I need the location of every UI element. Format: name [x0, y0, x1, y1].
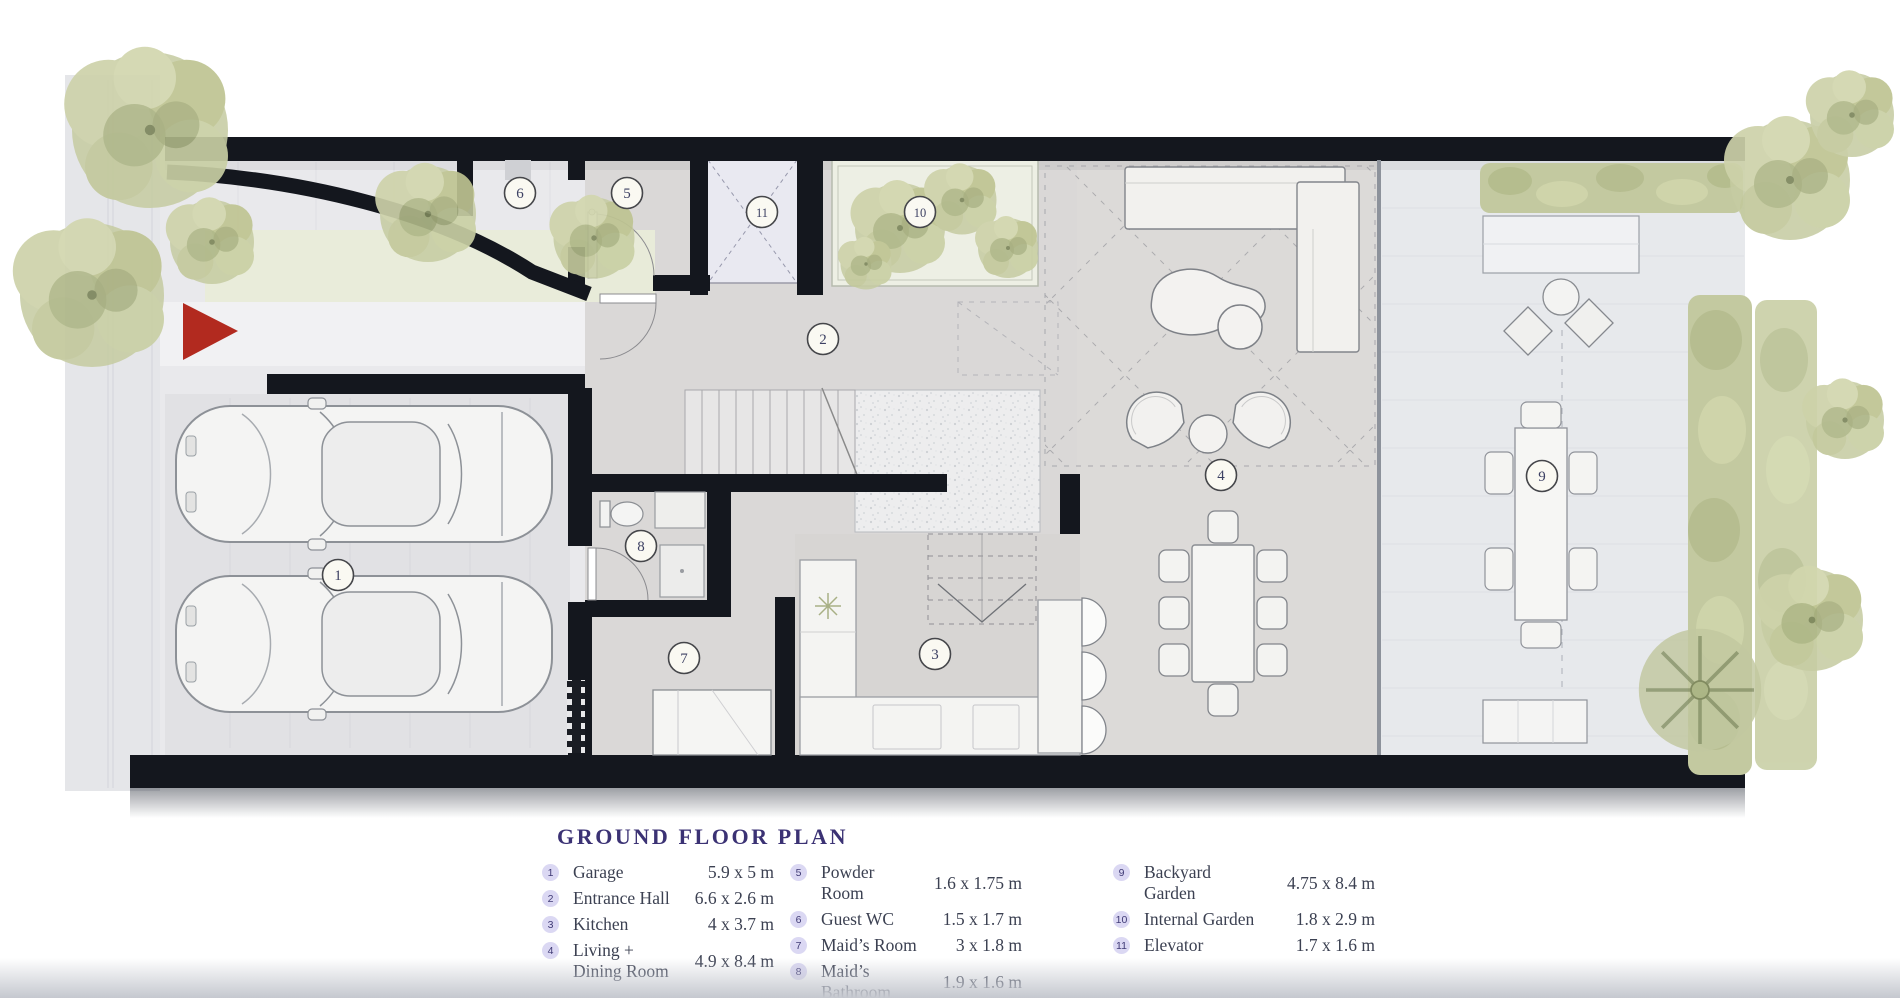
dining-chair	[1257, 597, 1287, 629]
plan-room-badge-10: 10	[905, 197, 936, 228]
plan-badge-number: 9	[1538, 469, 1546, 485]
outdoor-dining-table	[1515, 428, 1567, 620]
room-number-badge: 7	[790, 937, 807, 954]
wall-bottom	[130, 755, 1745, 788]
outdoor-chair	[1521, 402, 1561, 428]
room-name: Powder Room	[821, 862, 922, 904]
room-name: Garage	[573, 862, 674, 883]
maid-bed	[653, 690, 771, 755]
plan-badge-number: 10	[914, 206, 927, 220]
wall-below-stairs	[585, 474, 947, 492]
outdoor-chair	[1521, 622, 1561, 648]
plan-badge-number: 6	[516, 186, 524, 202]
room-name: Kitchen	[573, 914, 674, 935]
wall-maid-bath-right	[707, 474, 731, 617]
plan-title: GROUND FLOOR PLAN	[557, 824, 848, 850]
plan-bottom-shadow	[130, 788, 1745, 818]
room-number-badge: 10	[1113, 911, 1130, 928]
outdoor-chair	[1485, 452, 1513, 494]
dining-chair	[1257, 550, 1287, 582]
tree	[13, 218, 164, 367]
wall-garage-right-upper	[568, 388, 592, 546]
room-number-badge: 6	[790, 911, 807, 928]
wall-maid-bath-bottom	[585, 600, 731, 617]
room-dimensions: 1.5 x 1.7 m	[922, 909, 1023, 930]
outdoor-chair	[1485, 548, 1513, 590]
dining-chair	[1159, 597, 1189, 629]
plan-badge-number: 8	[637, 539, 645, 555]
outdoor-chair	[1569, 548, 1597, 590]
room-number-badge: 1	[542, 864, 559, 881]
room-number-badge: 9	[1113, 864, 1130, 881]
floor-plan-canvas: 1234567891011	[0, 0, 1900, 998]
room-number-badge: 2	[542, 890, 559, 907]
plan-badge-number: 3	[931, 647, 939, 663]
garage-car-1	[176, 398, 552, 550]
wall-stub-a	[568, 158, 585, 180]
plan-badge-number: 5	[623, 186, 631, 202]
glass-wall-backyard	[1377, 160, 1381, 755]
room-name: Guest WC	[821, 909, 922, 930]
room-name: Backyard Garden	[1144, 862, 1260, 904]
dining-chair	[1159, 644, 1189, 676]
legend-item: 3Kitchen4 x 3.7 m	[542, 914, 774, 935]
dining-chair	[1208, 511, 1238, 543]
legend-item: 6Guest WC1.5 x 1.7 m	[790, 909, 1022, 930]
wall-kitchen-left	[775, 597, 795, 755]
kitchen-counter-left	[800, 560, 856, 700]
room-number-badge: 5	[790, 864, 807, 881]
legend-item: 2Entrance Hall6.6 x 2.6 m	[542, 888, 774, 909]
wall-garage-top	[267, 374, 585, 394]
outdoor-chair	[1569, 452, 1597, 494]
plan-room-badge-5: 5	[612, 178, 643, 209]
vanity	[655, 492, 705, 528]
legend-item: 9Backyard Garden4.75 x 8.4 m	[1113, 862, 1375, 904]
shower-drain	[680, 569, 684, 573]
garden-round-table	[1543, 279, 1579, 315]
wall-kitchen-corner	[1060, 474, 1080, 534]
legend-column-3: 9Backyard Garden4.75 x 8.4 m10Internal G…	[1113, 862, 1375, 956]
wall-elevator-right	[797, 155, 823, 295]
plan-badge-number: 1	[334, 568, 342, 584]
room-dimensions: 5.9 x 5 m	[674, 862, 775, 883]
plan-room-badge-2: 2	[808, 324, 839, 355]
legend-item: 5Powder Room1.6 x 1.75 m	[790, 862, 1022, 904]
plan-badge-number: 4	[1217, 468, 1225, 484]
room-number-badge: 3	[542, 916, 559, 933]
legend-item: 10Internal Garden1.8 x 2.9 m	[1113, 909, 1375, 930]
dining-chair	[1159, 550, 1189, 582]
plan-badge-number: 11	[756, 206, 768, 220]
legend-item: 11Elevator1.7 x 1.6 m	[1113, 935, 1375, 956]
legend-item: 1Garage5.9 x 5 m	[542, 862, 774, 883]
room-dimensions: 6.6 x 2.6 m	[674, 888, 775, 909]
plan-room-badge-7: 7	[669, 643, 700, 674]
room-name: Maid’s Room	[821, 935, 922, 956]
breakfast-bar	[1038, 600, 1082, 753]
toilet-tank	[600, 501, 610, 527]
room-dimensions: 4 x 3.7 m	[674, 914, 775, 935]
side-table-round	[1189, 415, 1227, 453]
dining-chair	[1208, 684, 1238, 716]
room-dimensions: 1.6 x 1.75 m	[922, 873, 1023, 894]
room-name: Elevator	[1144, 935, 1260, 956]
toilet-bowl	[611, 502, 643, 526]
palm-tree	[1639, 629, 1761, 751]
room-name: Entrance Hall	[573, 888, 674, 909]
backyard-bench	[1483, 700, 1587, 743]
wall-top	[165, 137, 1745, 161]
dining-chair	[1257, 644, 1287, 676]
garage-shutter-strip	[567, 680, 585, 753]
room-dimensions: 3 x 1.8 m	[922, 935, 1023, 956]
room-number-badge: 4	[542, 942, 559, 959]
legend-item: 7Maid’s Room3 x 1.8 m	[790, 935, 1022, 956]
room-dimensions: 1.8 x 2.9 m	[1260, 909, 1376, 930]
plan-room-badge-9: 9	[1527, 461, 1558, 492]
room-number-badge: 11	[1113, 937, 1130, 954]
ottoman-round	[1218, 305, 1262, 349]
dining-table	[1192, 545, 1254, 682]
wall-elevator-left	[690, 155, 708, 295]
plan-room-badge-11: 11	[747, 197, 778, 228]
room-name: Internal Garden	[1144, 909, 1260, 930]
plan-room-badge-1: 1	[323, 560, 354, 591]
backyard-hedge-right-b	[1755, 300, 1817, 770]
plan-badge-number: 2	[819, 332, 827, 348]
page-bottom-fade	[0, 958, 1900, 998]
plan-room-badge-8: 8	[626, 531, 657, 562]
garage-car-2	[176, 568, 552, 720]
plan-room-badge-3: 3	[920, 639, 951, 670]
stair-landing-carpet	[855, 390, 1040, 532]
plan-room-badge-4: 4	[1206, 460, 1237, 491]
plan-room-badge-6: 6	[505, 178, 536, 209]
backyard-hedge-top	[1480, 163, 1743, 213]
room-dimensions: 4.75 x 8.4 m	[1260, 873, 1376, 894]
room-dimensions: 1.7 x 1.6 m	[1260, 935, 1376, 956]
main-staircase	[685, 388, 858, 477]
floor-plan-page: { "title": "GROUND FLOOR PLAN", "rooms":…	[0, 0, 1900, 998]
plan-badge-number: 7	[680, 651, 688, 667]
